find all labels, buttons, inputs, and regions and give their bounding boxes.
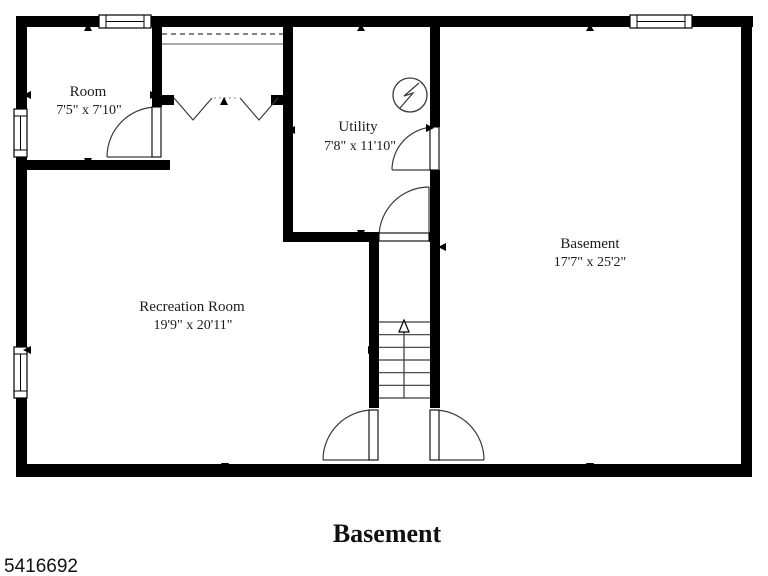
wall-left <box>16 16 27 477</box>
listing-id-number: 5416692 <box>4 556 78 576</box>
bifold-door-left <box>174 98 212 120</box>
room-dims: 7'5" x 7'10" <box>56 103 121 118</box>
closet <box>162 34 283 120</box>
basement-name: Basement <box>560 236 620 252</box>
door-stairs-left <box>323 410 378 460</box>
recreation-name: Recreation Room <box>139 299 245 315</box>
recreation-dims: 19'9" x 20'11" <box>154 318 233 333</box>
floor-plan-drawing: Room 7'5" x 7'10" Utility 7'8" x 11'10" … <box>0 0 768 576</box>
utility-name: Utility <box>338 119 378 135</box>
wall-utility-bottom-left <box>283 232 379 242</box>
wall-utility-left <box>283 16 293 232</box>
stairs <box>379 320 430 398</box>
dimension-ticks <box>23 23 749 471</box>
interior-walls <box>16 16 440 408</box>
window-top-basement <box>630 15 692 28</box>
windows <box>14 15 692 398</box>
basement-dims: 17'7" x 25'2" <box>554 255 626 270</box>
door-utility-bottom <box>379 187 429 241</box>
room-name: Room <box>70 84 107 100</box>
door-stairs-right <box>430 410 484 460</box>
window-left-upper <box>14 109 27 157</box>
electrical-panel-icon <box>393 78 427 112</box>
wall-utility-right-lower <box>430 170 440 408</box>
doors <box>107 107 484 460</box>
door-utility-right <box>392 127 439 170</box>
room-labels: Room 7'5" x 7'10" Utility 7'8" x 11'10" … <box>56 84 626 333</box>
wall-closet-stub-left <box>152 95 174 105</box>
plan-title: Basement <box>333 519 442 548</box>
utility-dims: 7'8" x 11'10" <box>324 139 396 154</box>
wall-stairwell-left <box>369 232 379 408</box>
exterior-walls <box>16 16 753 477</box>
wall-room-bottom <box>16 160 170 170</box>
floor-plan-page: Room 7'5" x 7'10" Utility 7'8" x 11'10" … <box>0 0 768 576</box>
wall-bottom <box>16 464 752 477</box>
window-left-lower <box>14 347 27 398</box>
window-top-room <box>99 15 151 28</box>
wall-utility-right-upper <box>430 16 440 127</box>
